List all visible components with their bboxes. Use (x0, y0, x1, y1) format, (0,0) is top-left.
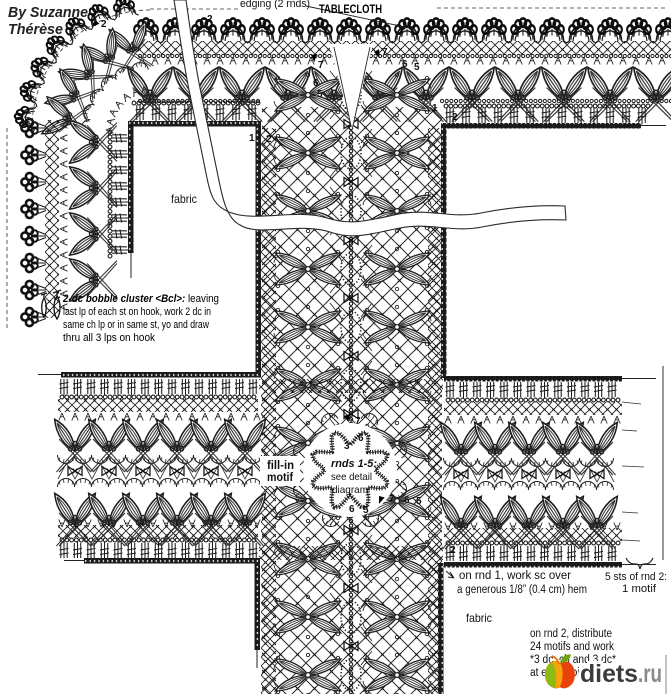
svg-text:same ch lp or in same st, yo a: same ch lp or in same st, yo and draw (63, 319, 209, 331)
svg-text:a generous 1/8” (0.4 cm) hem: a generous 1/8” (0.4 cm) hem (457, 584, 587, 596)
svg-text:last lp of each st on hook, wo: last lp of each st on hook, work 2 dc in (63, 306, 211, 318)
svg-text:6: 6 (358, 433, 364, 444)
svg-text:1: 1 (432, 103, 438, 114)
svg-text:6: 6 (313, 78, 319, 89)
svg-text:1: 1 (249, 133, 255, 144)
svg-text:7: 7 (382, 47, 388, 58)
svg-text:diagram: diagram (332, 484, 368, 496)
svg-text:2: 2 (450, 545, 456, 556)
svg-text:5 sts of rnd 2:: 5 sts of rnd 2: (605, 571, 667, 583)
svg-text:7: 7 (389, 494, 395, 505)
svg-text:TABLECLOTH: TABLECLOTH (319, 4, 382, 16)
svg-text:motif: motif (267, 472, 293, 484)
svg-text:5: 5 (363, 505, 369, 516)
svg-text:6: 6 (349, 504, 355, 515)
svg-text:6: 6 (404, 495, 410, 506)
svg-text:3: 3 (344, 441, 350, 452)
svg-text:thru all 3 lps on hook: thru all 3 lps on hook (63, 332, 155, 344)
svg-text:5: 5 (416, 496, 422, 507)
svg-text:7: 7 (355, 416, 361, 427)
svg-text:rnds 1-5:: rnds 1-5: (331, 458, 377, 470)
svg-text:2: 2 (101, 19, 107, 30)
svg-text:edging (2 rnds): edging (2 rnds) (240, 0, 310, 10)
svg-text:2: 2 (452, 112, 458, 123)
svg-text:1 motif: 1 motif (622, 583, 657, 595)
svg-text:6: 6 (402, 59, 408, 70)
svg-text:see detail: see detail (331, 471, 372, 483)
svg-text:fabric: fabric (466, 611, 492, 625)
svg-text:2-dc bobble cluster <Bcl>: lea: 2-dc bobble cluster <Bcl>: leaving (62, 293, 219, 305)
svg-text:5: 5 (317, 89, 323, 100)
svg-text:diets: diets (580, 660, 638, 688)
svg-text:on rnd 1, work sc over: on rnd 1, work sc over (459, 570, 571, 582)
svg-text:2: 2 (266, 134, 272, 145)
svg-text:fabric: fabric (171, 192, 197, 206)
svg-text:Thérèse: Thérèse (8, 22, 63, 38)
svg-text:24 motifs and work: 24 motifs and work (530, 641, 614, 653)
svg-text:7: 7 (318, 60, 324, 71)
svg-text:fill-in: fill-in (267, 460, 294, 472)
svg-text:on rnd 2, distribute: on rnd 2, distribute (530, 628, 612, 640)
svg-text:5: 5 (414, 62, 420, 73)
svg-text:2: 2 (207, 14, 213, 25)
svg-text:By Suzanne: By Suzanne (8, 5, 88, 21)
svg-text:.ru: .ru (638, 660, 662, 688)
